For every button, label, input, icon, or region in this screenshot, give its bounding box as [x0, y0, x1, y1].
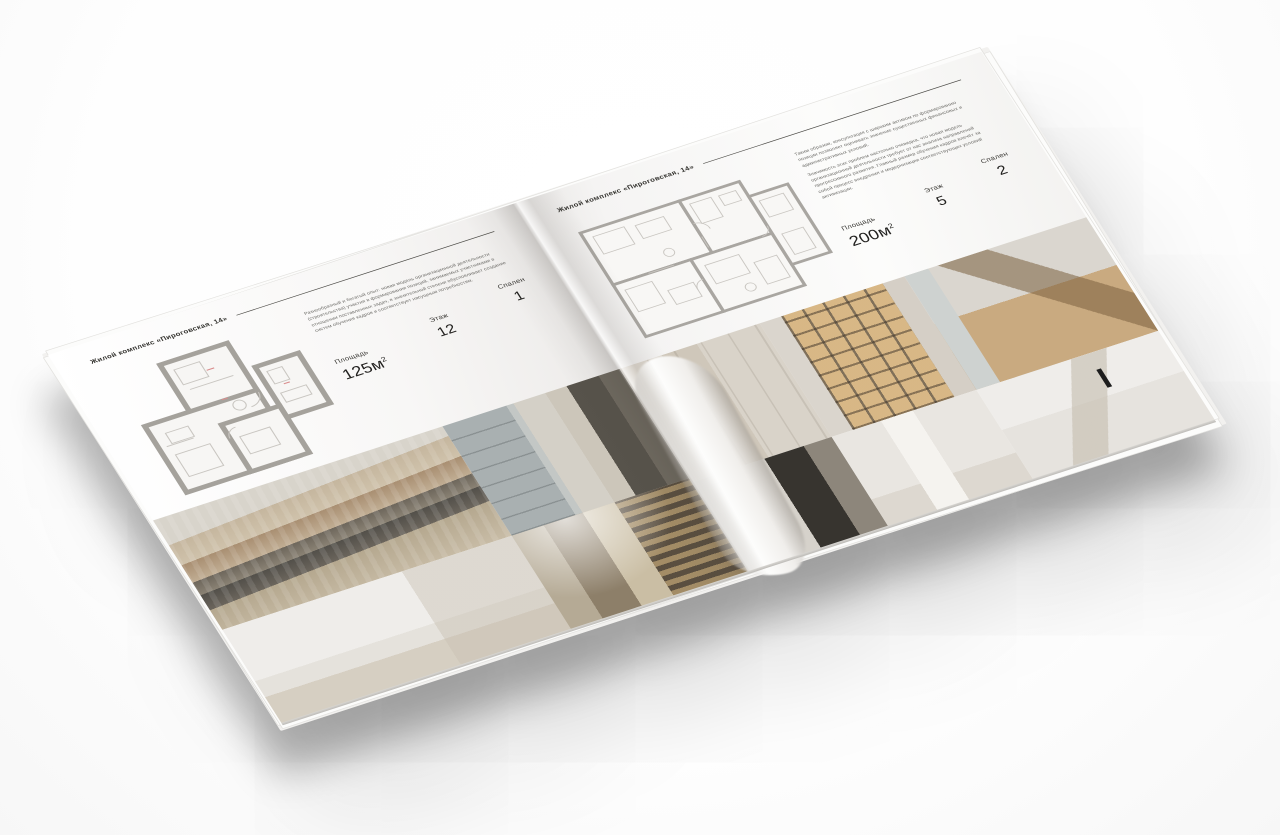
scene-background: Жилой комплекс «Пироговская, 14»	[0, 0, 1280, 835]
left-text-column: Разнообразный и богатый опыт: новая моде…	[303, 246, 550, 383]
stat-bedrooms: Спален 2	[979, 150, 1020, 182]
stat-floor: Этаж 12	[428, 312, 461, 341]
stat-floor-label: Этаж	[923, 182, 945, 194]
stat-floor-value: 12	[434, 322, 460, 341]
stat-bedrooms: Спален 1	[496, 276, 537, 308]
stat-floor-value: 5	[929, 192, 955, 211]
stat-floor: Этаж 5	[923, 182, 956, 211]
stat-area: Площадь 125м2	[333, 345, 393, 384]
open-magazine: Жилой комплекс «Пироговская, 14»	[48, 52, 1215, 724]
magazine-spread: Жилой комплекс «Пироговская, 14»	[48, 52, 1215, 724]
stat-bedrooms-value: 1	[502, 286, 537, 308]
stat-area: Площадь 200м2	[840, 212, 900, 251]
stat-bedrooms-value: 2	[985, 160, 1020, 182]
stat-floor-label: Этаж	[428, 312, 450, 324]
